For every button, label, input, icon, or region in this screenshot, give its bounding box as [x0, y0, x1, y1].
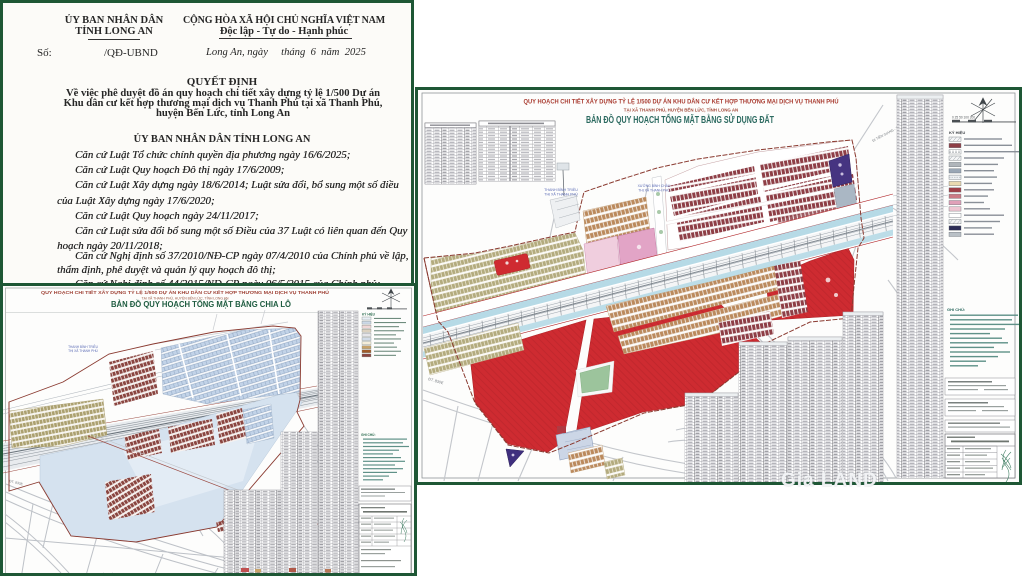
svg-text:ĐƯỜNG VÀNH ĐAI: ĐƯỜNG VÀNH ĐAI: [98, 571, 123, 576]
svg-text:THỊ XÃ THANH PHÚ: THỊ XÃ THANH PHÚ: [638, 188, 670, 193]
svg-text:GHI CHÚ:: GHI CHÚ:: [947, 307, 965, 312]
svg-text:BẢN ĐỒ QUY HOẠCH TỔNG MẶT BẰNG: BẢN ĐỒ QUY HOẠCH TỔNG MẶT BẰNG CHIA LÔ: [111, 299, 291, 309]
svg-text:THỊ XÃ THANH PHÚ: THỊ XÃ THANH PHÚ: [68, 348, 98, 353]
svg-text:BẢN ĐỒ QUY HOẠCH TỔNG MẶT BẰNG: BẢN ĐỒ QUY HOẠCH TỔNG MẶT BẰNG SỬ DỤNG Đ…: [586, 114, 774, 126]
svg-text:GHI CHÚ:: GHI CHÚ:: [361, 432, 376, 437]
svg-text:ĐƯỜNG SỐ 8: ĐƯỜNG SỐ 8: [203, 572, 222, 576]
svg-text:ĐT. 830E: ĐT. 830E: [428, 377, 445, 385]
svg-text:0 25 50 100: 0 25 50 100 200: [952, 116, 975, 120]
svg-text:TẠI XÃ THANH PHÚ, HUYỆN BẾN LỨ: TẠI XÃ THANH PHÚ, HUYỆN BẾN LỨC, TỈNH LO…: [624, 108, 738, 113]
svg-text:XƯỞNG BÌNH CHÂU: XƯỞNG BÌNH CHÂU: [638, 183, 671, 188]
svg-text:QUY HOẠCH CHI TIẾT XÂY DỰNG TỶ: QUY HOẠCH CHI TIẾT XÂY DỰNG TỶ LỆ 1/500 …: [524, 96, 839, 106]
svg-text:KÝ HIỆU: KÝ HIỆU: [362, 312, 376, 317]
svg-text:ĐT. 830E: ĐT. 830E: [9, 479, 24, 486]
svg-text:QUY HOẠCH CHI TIẾT XÂY DỰNG TỶ: QUY HOẠCH CHI TIẾT XÂY DỰNG TỶ LỆ 1/500 …: [41, 288, 330, 296]
svg-text:KÝ HIỆU: KÝ HIỆU: [949, 130, 965, 135]
svg-text:THỊ XÃ THANH PHÚ: THỊ XÃ THANH PHÚ: [544, 192, 578, 197]
svg-text:THANH BÌNH TRIỀU: THANH BÌNH TRIỀU: [544, 187, 578, 192]
